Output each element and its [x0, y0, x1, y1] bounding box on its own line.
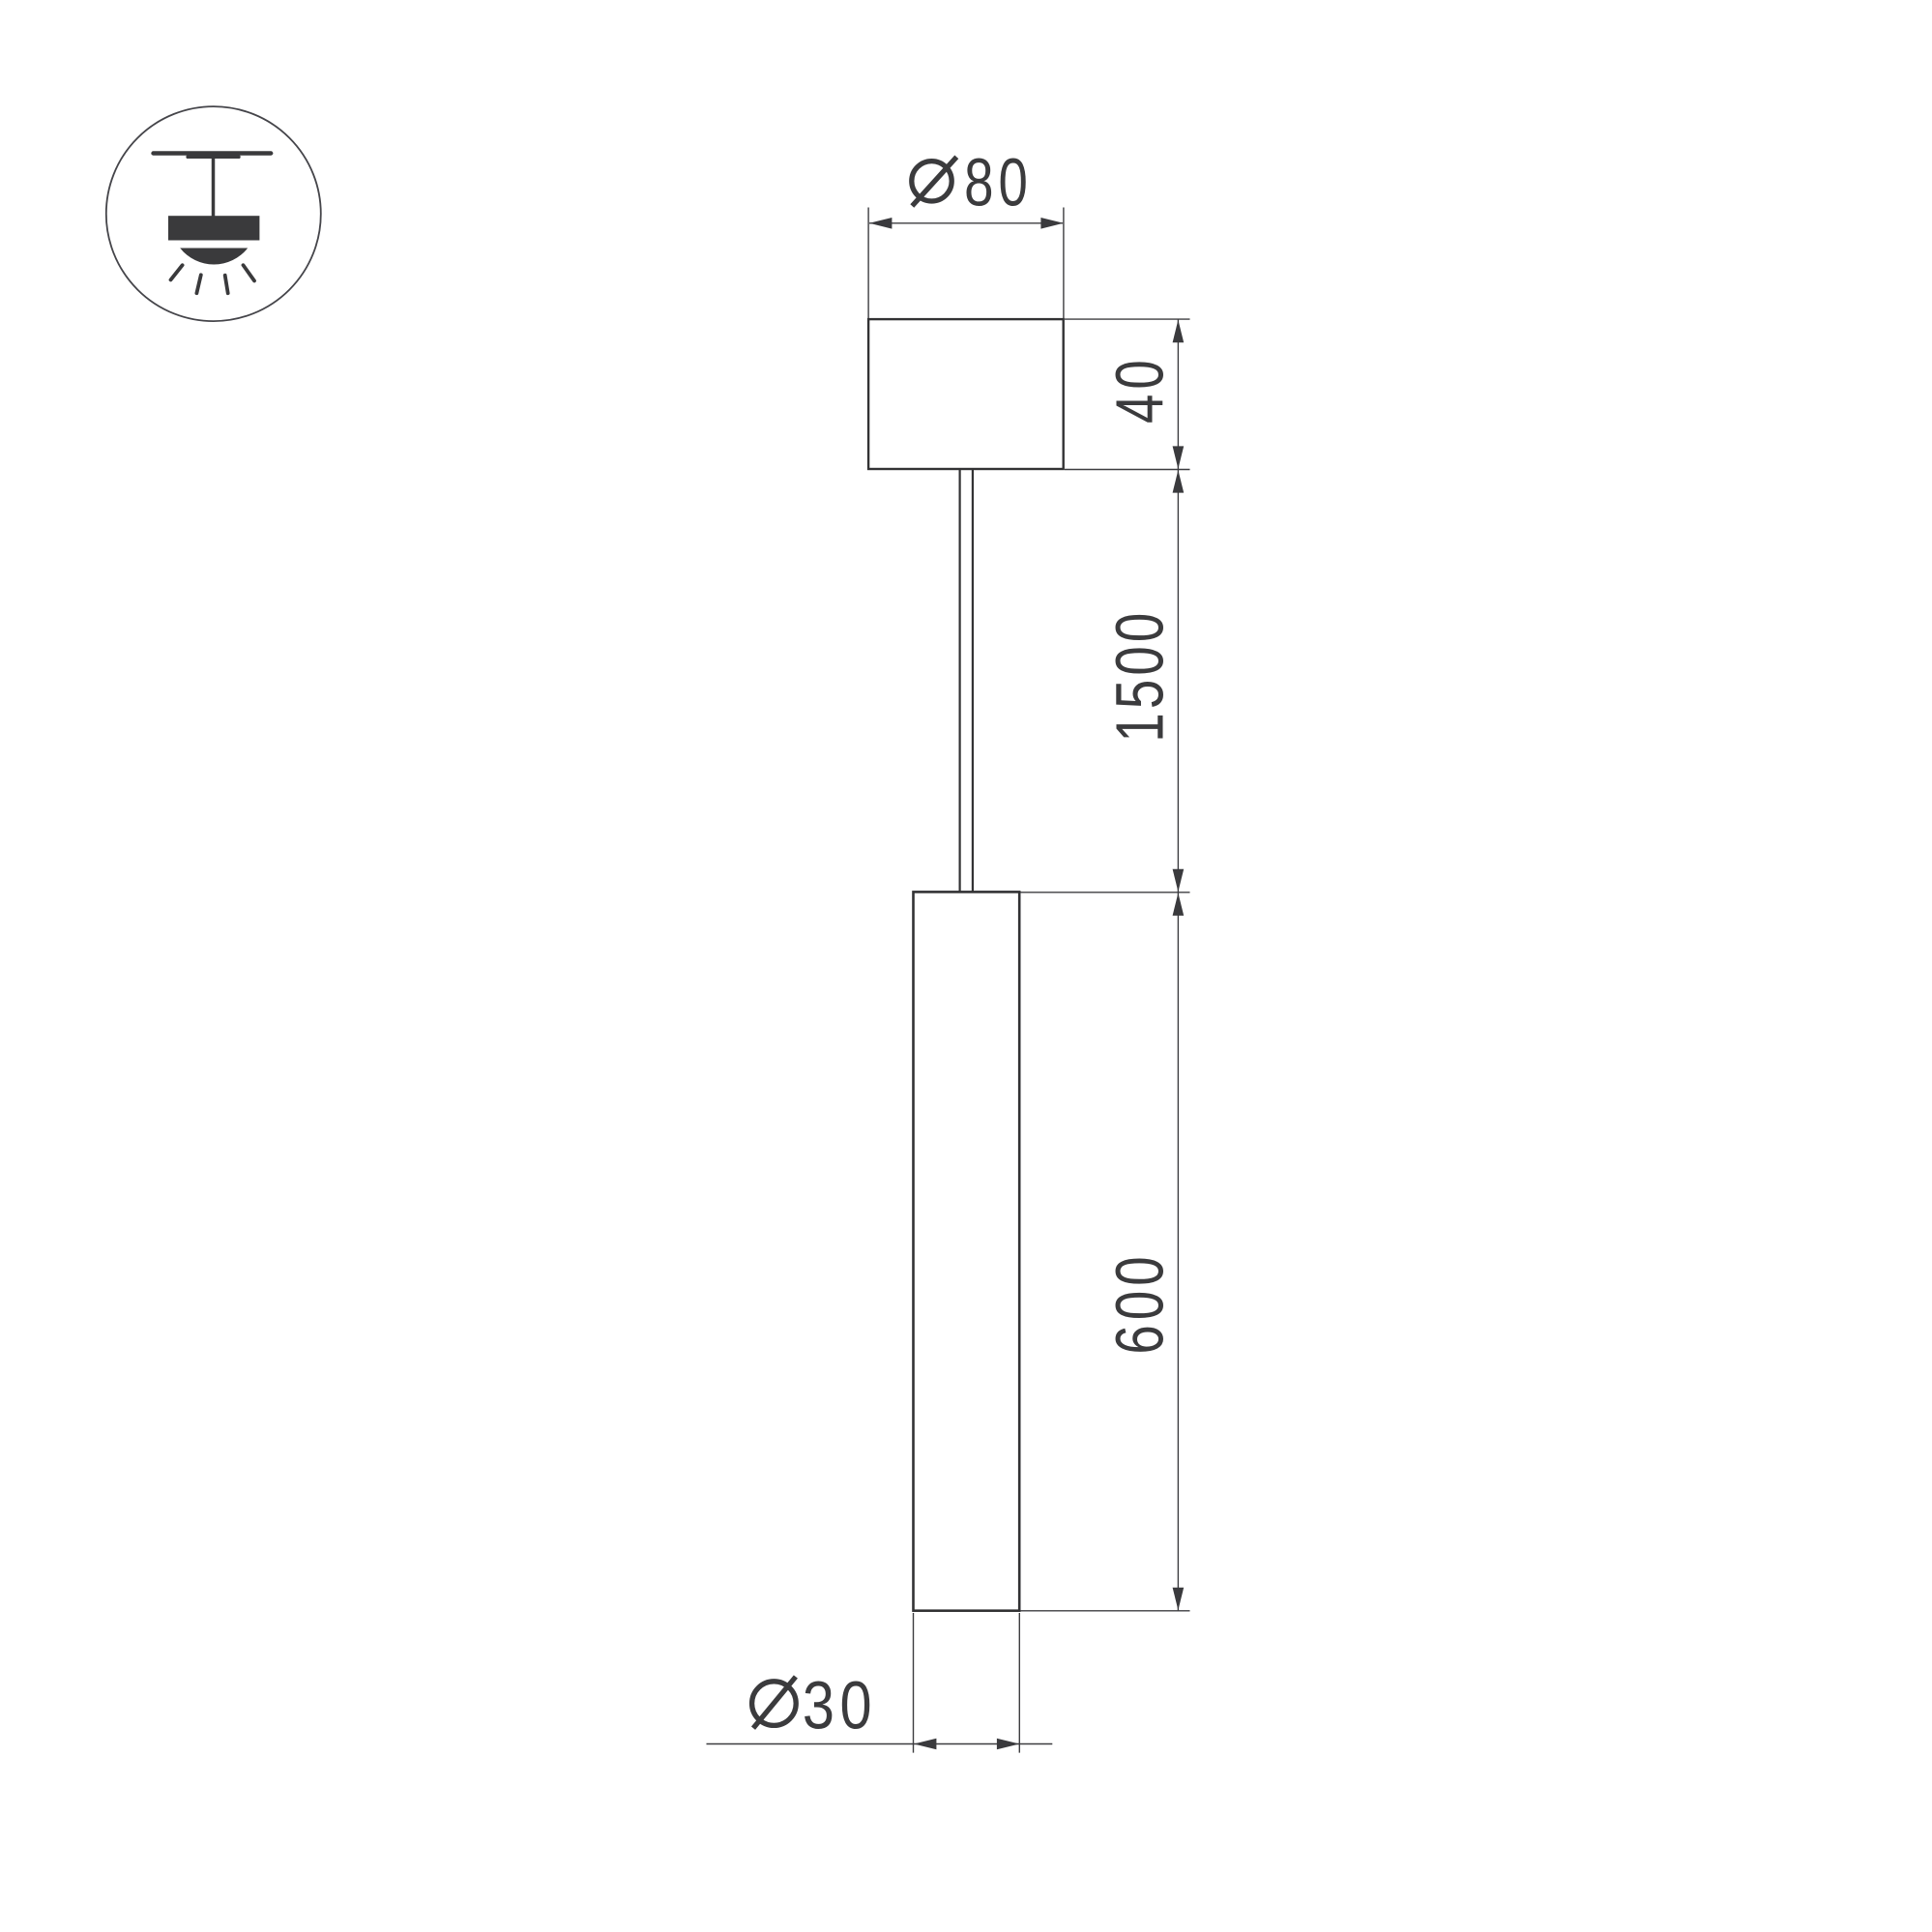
svg-text:600: 600 [1102, 1251, 1178, 1354]
svg-text:1500: 1500 [1102, 609, 1178, 743]
svg-text:80: 80 [964, 145, 1033, 220]
svg-text:40: 40 [1102, 355, 1178, 424]
svg-text:30: 30 [803, 1667, 877, 1743]
